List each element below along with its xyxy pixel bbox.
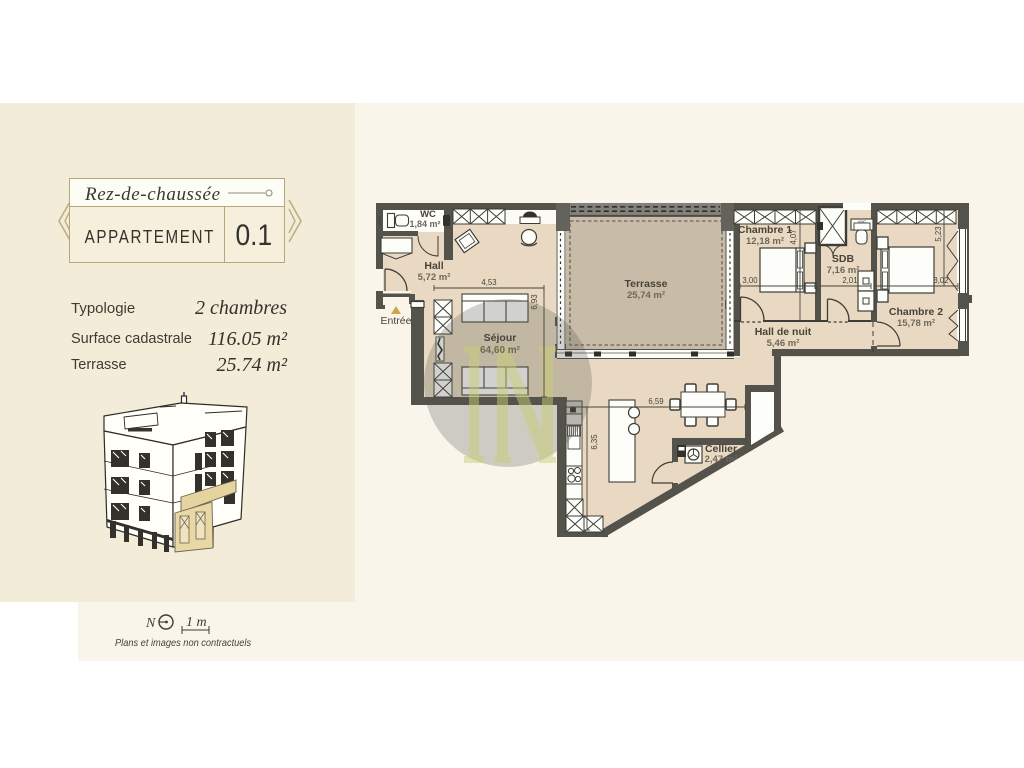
svg-text:3,00: 3,00 <box>742 276 758 285</box>
svg-text:3,02: 3,02 <box>933 276 948 285</box>
svg-text:SDB: SDB <box>832 253 855 265</box>
svg-text:1 m: 1 m <box>186 615 207 630</box>
svg-text:Hall: Hall <box>424 260 443 272</box>
svg-text:VMC: VMC <box>377 215 382 226</box>
svg-text:2,47 m²: 2,47 m² <box>705 454 738 465</box>
svg-text:7,16 m²: 7,16 m² <box>827 265 860 276</box>
svg-text:5,23: 5,23 <box>934 226 943 241</box>
svg-text:Terrasse: Terrasse <box>624 278 667 290</box>
svg-text:Séjour: Séjour <box>484 332 517 344</box>
svg-text:4,53: 4,53 <box>481 278 496 287</box>
svg-text:6,93: 6,93 <box>530 294 539 309</box>
svg-text:2,01: 2,01 <box>842 276 857 285</box>
svg-text:1,84 m²: 1,84 m² <box>409 219 440 229</box>
svg-text:15,78 m²: 15,78 m² <box>897 318 935 329</box>
svg-text:5,72 m²: 5,72 m² <box>418 272 451 283</box>
svg-text:12,18 m²: 12,18 m² <box>746 236 784 247</box>
svg-text:6,35: 6,35 <box>590 434 599 450</box>
svg-text:N: N <box>145 616 156 631</box>
svg-text:Entrée: Entrée <box>381 315 412 327</box>
svg-text:25,74 m²: 25,74 m² <box>627 290 665 301</box>
svg-text:5,46 m²: 5,46 m² <box>767 338 800 349</box>
svg-text:6,59: 6,59 <box>648 397 663 406</box>
svg-text:Chambre 1: Chambre 1 <box>738 224 792 236</box>
svg-text:64,60 m²: 64,60 m² <box>480 345 521 356</box>
svg-text:Chambre 2: Chambre 2 <box>889 306 943 318</box>
svg-text:Hall de nuit: Hall de nuit <box>755 326 812 338</box>
svg-text:VMC: VMC <box>858 220 867 224</box>
